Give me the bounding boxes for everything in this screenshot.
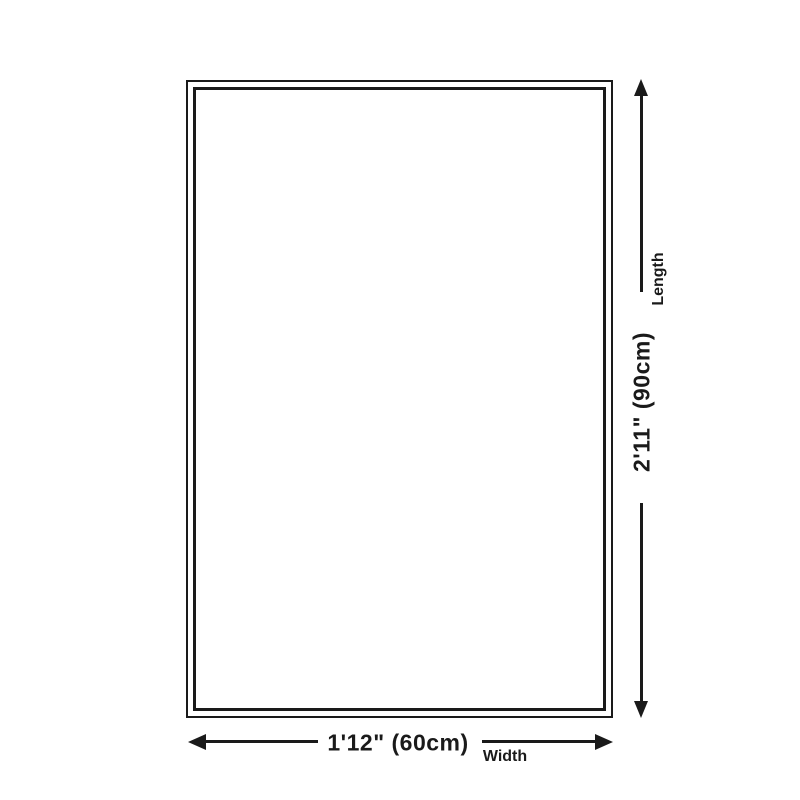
length-arrow-line-upper (640, 94, 643, 292)
length-value: 2'11" (90cm) (629, 332, 656, 472)
arrow-left-icon (188, 734, 206, 750)
arrow-right-icon (595, 734, 613, 750)
size-diagram: 2'11" (90cm) Length 1'12" (60cm) Width (0, 0, 800, 800)
rug-outline (186, 80, 613, 718)
length-arrow-line-lower (640, 503, 643, 702)
rug-inner-border (193, 87, 606, 711)
length-label: Length (650, 252, 668, 305)
arrow-down-icon (634, 701, 648, 718)
width-arrow-line-left (205, 740, 318, 743)
width-label: Width (483, 748, 527, 766)
width-value: 1'12" (60cm) (327, 730, 468, 757)
width-arrow-line-right (482, 740, 596, 743)
